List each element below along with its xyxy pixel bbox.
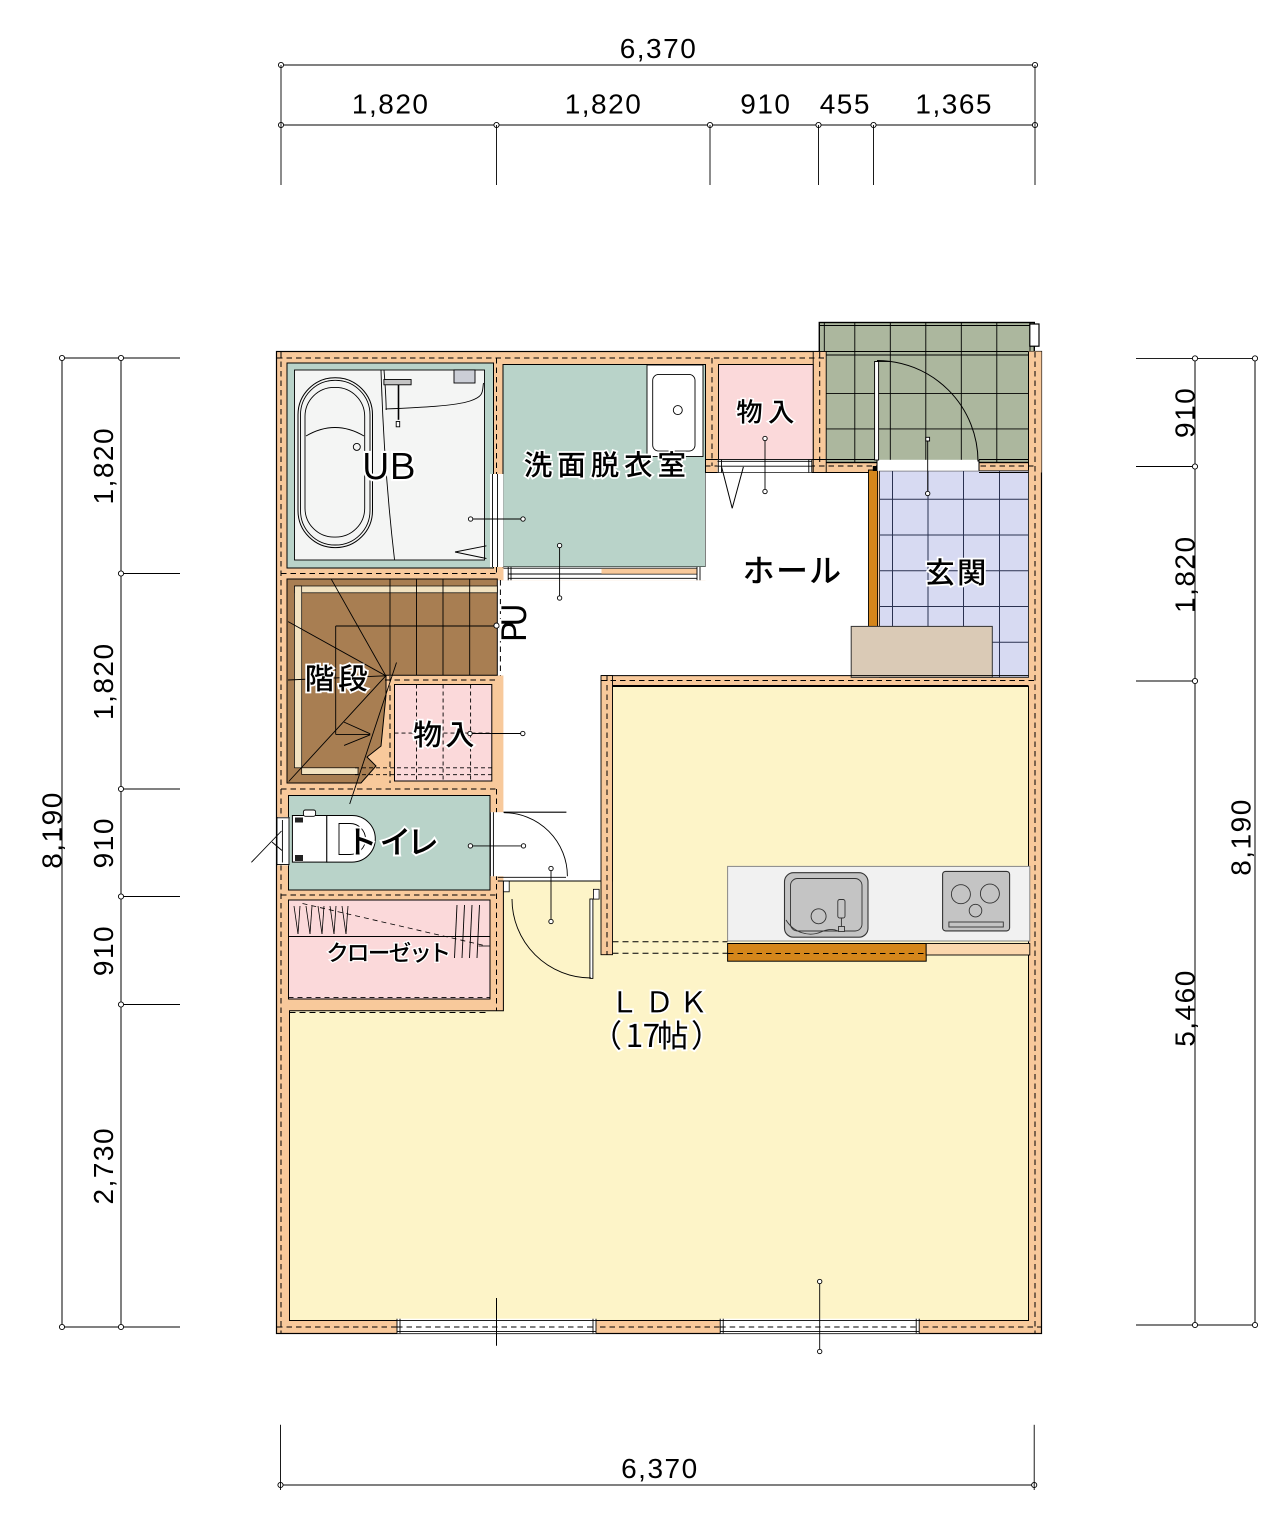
- svg-text:910: 910: [740, 89, 791, 120]
- svg-text:1,820: 1,820: [88, 642, 119, 720]
- svg-text:1,365: 1,365: [915, 89, 993, 120]
- svg-text:8,190: 8,190: [1226, 798, 1257, 876]
- svg-text:910: 910: [88, 925, 119, 976]
- svg-text:1,820: 1,820: [88, 427, 119, 505]
- svg-text:1,820: 1,820: [352, 89, 430, 120]
- svg-text:1,820: 1,820: [1170, 535, 1201, 613]
- svg-text:910: 910: [1170, 387, 1201, 438]
- svg-text:5,460: 5,460: [1170, 969, 1201, 1047]
- svg-text:455: 455: [820, 89, 871, 120]
- svg-text:6,370: 6,370: [620, 33, 698, 64]
- svg-text:6,370: 6,370: [621, 1453, 699, 1484]
- svg-text:2,730: 2,730: [88, 1127, 119, 1205]
- svg-text:910: 910: [88, 817, 119, 868]
- svg-text:1,820: 1,820: [565, 89, 643, 120]
- svg-text:8,190: 8,190: [37, 791, 68, 869]
